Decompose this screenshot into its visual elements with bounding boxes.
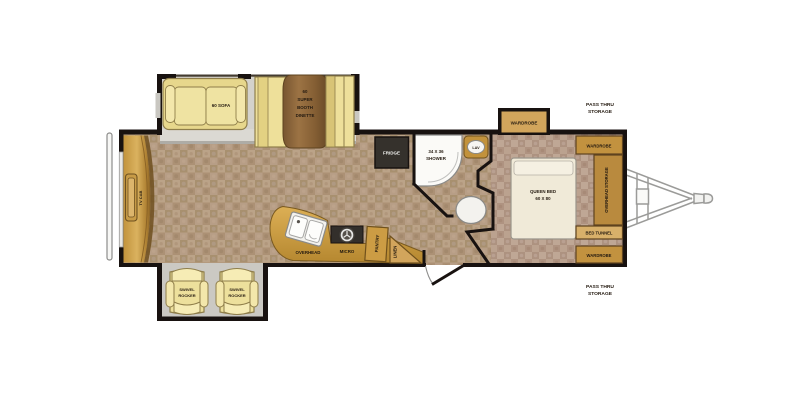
svg-text:BOOTH: BOOTH <box>297 105 313 110</box>
svg-text:60 SOFA: 60 SOFA <box>212 103 231 108</box>
svg-text:SWIVEL: SWIVEL <box>229 287 245 292</box>
svg-text:OVERHEAD: OVERHEAD <box>296 250 321 255</box>
svg-text:PASS THRU: PASS THRU <box>586 102 614 108</box>
svg-text:WARDROBE: WARDROBE <box>587 144 612 149</box>
svg-text:STORAGE: STORAGE <box>588 291 613 297</box>
svg-text:BED TUNNEL: BED TUNNEL <box>586 231 613 236</box>
svg-text:STORAGE: STORAGE <box>588 109 613 115</box>
svg-text:TV CAB: TV CAB <box>138 190 143 205</box>
svg-text:QUEEN BED: QUEEN BED <box>530 189 556 194</box>
svg-text:WARDROBE: WARDROBE <box>511 121 538 126</box>
svg-text:SUPER: SUPER <box>297 97 313 102</box>
svg-text:FRIDGE: FRIDGE <box>383 151 400 156</box>
svg-text:LAV: LAV <box>472 146 480 150</box>
svg-text:60 X 80: 60 X 80 <box>535 196 551 201</box>
svg-text:SWIVEL: SWIVEL <box>179 287 195 292</box>
svg-text:60: 60 <box>303 89 308 94</box>
svg-text:LINEN: LINEN <box>393 246 398 259</box>
svg-text:34 X 36: 34 X 36 <box>428 149 444 154</box>
svg-text:WARDROBE: WARDROBE <box>587 253 612 258</box>
svg-text:MICRO: MICRO <box>340 249 355 254</box>
svg-text:DINETTE: DINETTE <box>296 113 315 118</box>
svg-text:OVERHEAD STORAGE: OVERHEAD STORAGE <box>604 167 609 213</box>
svg-text:PASS THRU: PASS THRU <box>586 284 614 290</box>
svg-text:ROCKER: ROCKER <box>228 293 245 298</box>
svg-text:ROCKER: ROCKER <box>178 293 195 298</box>
svg-text:SHOWER: SHOWER <box>426 156 447 161</box>
